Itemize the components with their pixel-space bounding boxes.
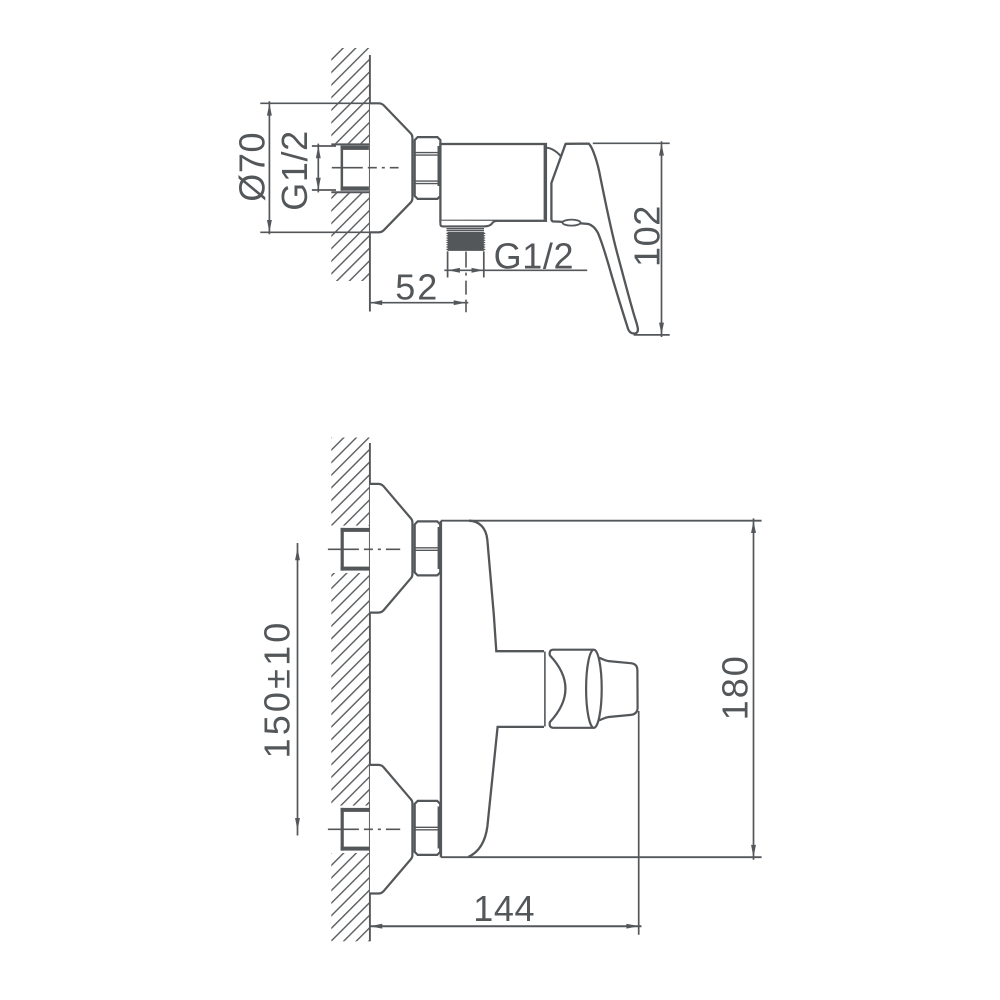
svg-text:102: 102 (627, 205, 668, 267)
svg-text:G1/2: G1/2 (274, 130, 315, 210)
svg-text:52: 52 (395, 267, 439, 308)
svg-text:150±10: 150±10 (256, 619, 297, 758)
svg-text:144: 144 (473, 888, 535, 929)
svg-text:Ø70: Ø70 (231, 132, 272, 202)
svg-text:180: 180 (714, 654, 755, 720)
svg-text:G1/2: G1/2 (494, 236, 574, 277)
